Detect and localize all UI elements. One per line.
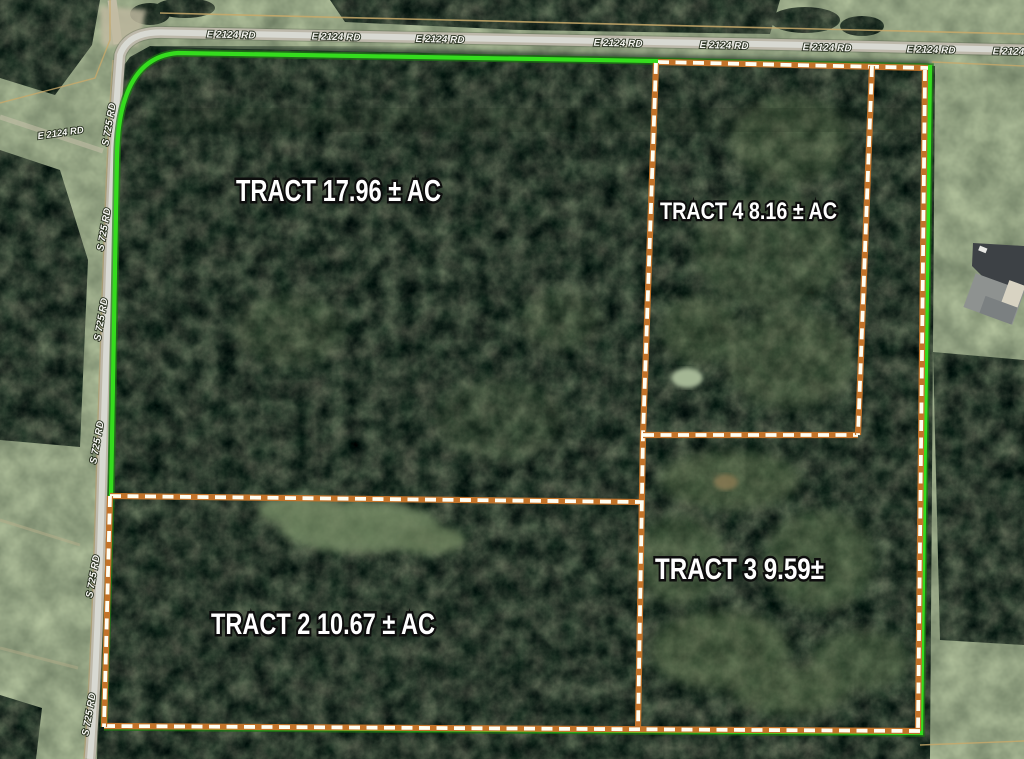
- svg-text:E 2124 RD: E 2124 RD: [206, 29, 255, 41]
- svg-text:E 2124 RD: E 2124 RD: [593, 38, 642, 50]
- svg-text:TRACT 2 10.67 ± AC: TRACT 2 10.67 ± AC: [211, 608, 435, 641]
- svg-text:TRACT 4 8.16 ± AC: TRACT 4 8.16 ± AC: [660, 198, 837, 225]
- svg-text:E 2124 RD: E 2124 RD: [311, 31, 360, 43]
- svg-text:E 2124 RD: E 2124 RD: [699, 40, 748, 52]
- svg-text:E 2124 RD: E 2124 RD: [992, 46, 1024, 58]
- svg-text:E 2124 RD: E 2124 RD: [802, 42, 851, 54]
- svg-text:E 2124 RD: E 2124 RD: [906, 44, 955, 56]
- svg-text:TRACT 3 9.59±: TRACT 3 9.59±: [655, 553, 824, 586]
- svg-text:E 2124 RD: E 2124 RD: [415, 34, 464, 46]
- svg-text:TRACT 17.96 ± AC: TRACT 17.96 ± AC: [236, 173, 441, 208]
